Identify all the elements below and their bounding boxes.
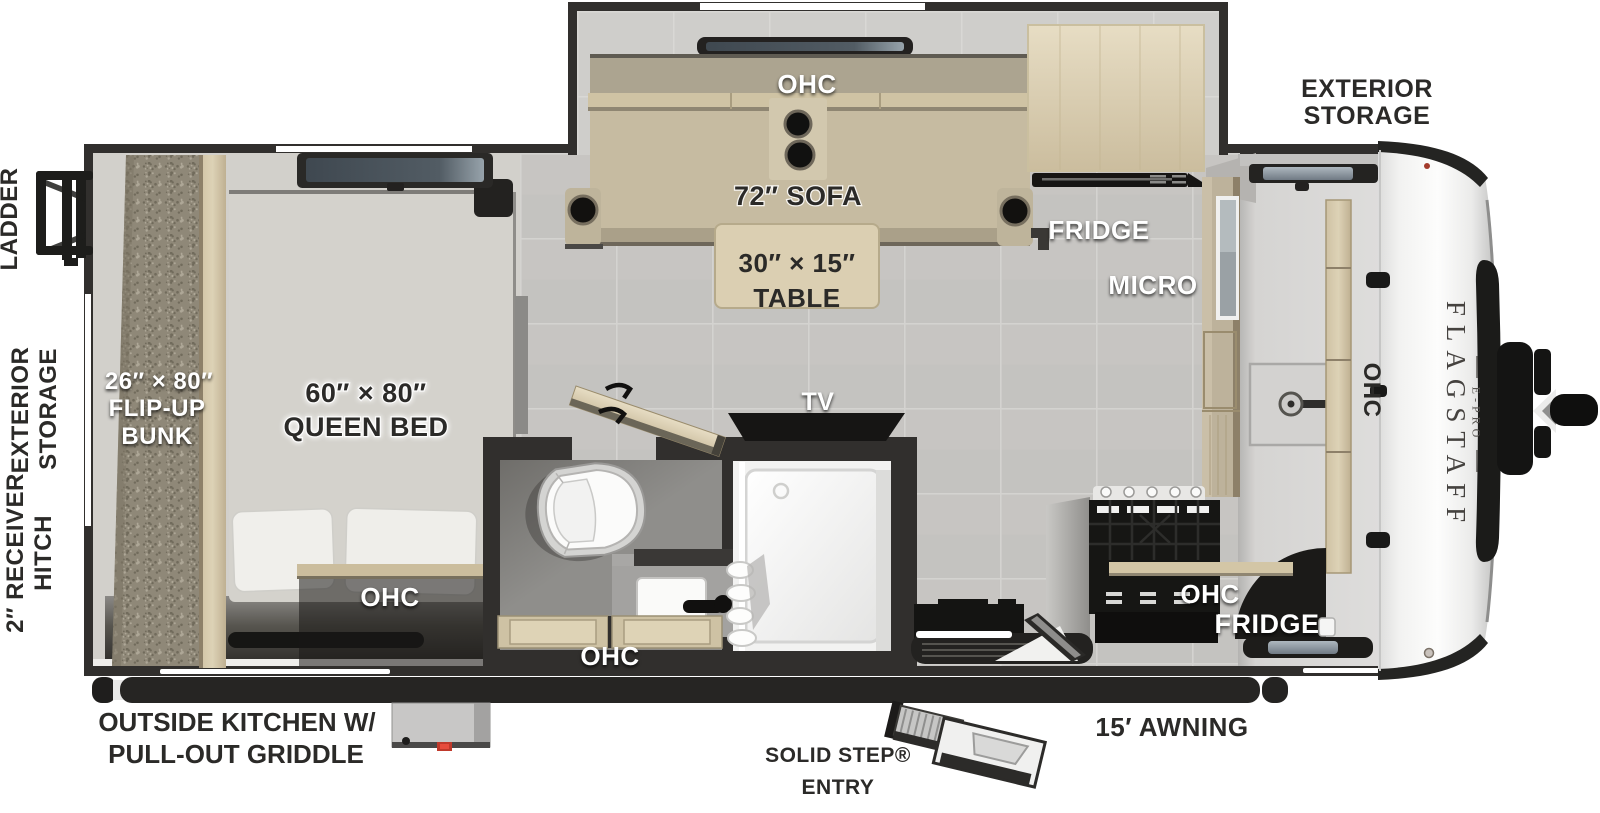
svg-text:ENTRY: ENTRY bbox=[802, 776, 875, 799]
svg-text:E-PRO: E-PRO bbox=[1469, 387, 1483, 442]
svg-text:OHC: OHC bbox=[360, 582, 419, 612]
svg-text:2″ RECEIVER: 2″ RECEIVER bbox=[2, 473, 29, 633]
svg-text:15′ AWNING: 15′ AWNING bbox=[1095, 712, 1248, 742]
svg-text:TV: TV bbox=[802, 388, 835, 416]
svg-text:QUEEN BED: QUEEN BED bbox=[283, 412, 448, 442]
svg-text:FLIP-UP: FLIP-UP bbox=[109, 395, 206, 422]
svg-text:EXTERIOR: EXTERIOR bbox=[7, 347, 34, 474]
svg-text:LADDER: LADDER bbox=[0, 168, 23, 271]
svg-text:26″ × 80″: 26″ × 80″ bbox=[105, 368, 213, 395]
svg-text:HITCH: HITCH bbox=[30, 515, 57, 591]
svg-text:OHC: OHC bbox=[777, 69, 836, 99]
svg-text:SOLID STEP®: SOLID STEP® bbox=[765, 744, 911, 767]
svg-text:STORAGE: STORAGE bbox=[35, 348, 62, 470]
svg-text:PULL-OUT GRIDDLE: PULL-OUT GRIDDLE bbox=[108, 739, 364, 769]
svg-text:STORAGE: STORAGE bbox=[1304, 102, 1431, 130]
svg-text:FLAGSTAFF: FLAGSTAFF bbox=[1441, 301, 1471, 531]
svg-text:OUTSIDE KITCHEN W/: OUTSIDE KITCHEN W/ bbox=[98, 707, 375, 737]
svg-text:EXTERIOR: EXTERIOR bbox=[1301, 75, 1433, 103]
svg-text:OHC: OHC bbox=[580, 641, 639, 671]
svg-text:OHC: OHC bbox=[1180, 579, 1239, 609]
svg-text:MICRO: MICRO bbox=[1108, 270, 1197, 300]
svg-text:BUNK: BUNK bbox=[121, 423, 192, 450]
svg-text:TABLE: TABLE bbox=[753, 283, 840, 313]
svg-text:30″ × 15″: 30″ × 15″ bbox=[739, 248, 856, 278]
svg-text:72″ SOFA: 72″ SOFA bbox=[734, 181, 862, 211]
svg-text:60″ × 80″: 60″ × 80″ bbox=[305, 378, 426, 408]
svg-text:FRIDGE: FRIDGE bbox=[1048, 215, 1149, 245]
svg-text:OHC: OHC bbox=[1358, 363, 1385, 418]
svg-text:FRIDGE: FRIDGE bbox=[1214, 609, 1319, 639]
